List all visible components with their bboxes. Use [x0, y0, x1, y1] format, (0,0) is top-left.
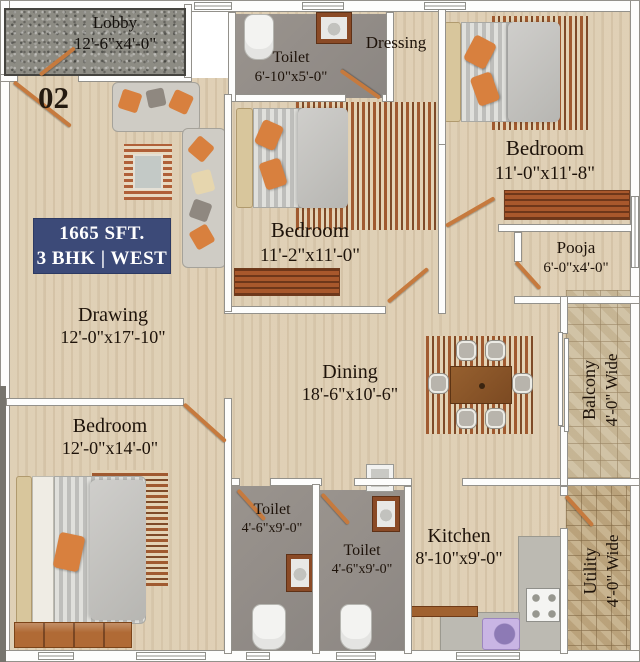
kitchen-shelf — [410, 606, 478, 617]
wardrobe-icon — [504, 190, 630, 220]
room-dims: 4'-0" Wide — [601, 354, 622, 427]
room-name: Toilet — [232, 500, 312, 520]
basin-bowl — [321, 17, 347, 39]
pooja-label: Pooja 6'-0"x4'-0" — [530, 238, 622, 277]
washbasin-icon — [372, 496, 400, 532]
room-name: Dining — [290, 360, 410, 384]
wall — [462, 478, 564, 486]
wall — [234, 94, 346, 102]
wall — [560, 478, 640, 486]
wall — [560, 296, 568, 334]
kitchen-label: Kitchen 8'-10"x9'-0" — [405, 524, 513, 570]
table-knob — [479, 383, 485, 389]
bed-headboard — [236, 108, 253, 208]
room-dims: 8'-10"x9'-0" — [405, 548, 513, 570]
wall — [514, 296, 640, 304]
sofa-icon — [182, 128, 226, 268]
window-icon — [38, 652, 74, 660]
wall — [498, 224, 638, 232]
chair-icon — [486, 409, 505, 428]
room-dims: 6'-0"x4'-0" — [530, 259, 622, 277]
dressing-label: Dressing — [356, 33, 436, 54]
wall — [438, 144, 446, 314]
toilet-left-label: Toilet 4'-6"x9'-0" — [232, 500, 312, 537]
wall — [0, 650, 640, 662]
washbasin-icon — [286, 554, 314, 592]
room-name: Pooja — [530, 238, 622, 259]
room-name: Dressing — [356, 33, 436, 54]
wall — [312, 484, 320, 654]
toilet-fixture-icon — [252, 604, 286, 650]
room-dims: 4'-0" Wide — [602, 535, 623, 608]
wall — [560, 528, 568, 654]
washbasin-icon — [316, 12, 352, 44]
bed-icon — [236, 108, 348, 208]
cushion-icon — [188, 223, 215, 250]
lobby-label: Lobby 12'-6"x4'-0" — [55, 13, 175, 54]
room-dims: 4'-6"x9'-0" — [322, 561, 402, 578]
wall — [228, 12, 236, 102]
basin-bowl — [377, 501, 395, 527]
room-dims: 12'-0"x17'-10" — [53, 327, 173, 349]
room-name: Drawing — [53, 303, 173, 327]
room-dims: 12'-6"x4'-0" — [55, 34, 175, 55]
bed-icon — [16, 476, 146, 624]
wall — [224, 306, 386, 314]
room-dims: 11'-2"x11'-0" — [240, 244, 380, 267]
chair-icon — [486, 341, 505, 360]
bedroom-left-label: Bedroom 12'-0"x14'-0" — [40, 414, 180, 460]
wall — [438, 6, 446, 146]
window-icon — [246, 652, 270, 660]
dining-table-icon — [450, 366, 512, 404]
bed-blanket — [508, 22, 560, 122]
unit-number: 02 — [38, 80, 69, 116]
wall — [224, 398, 232, 654]
bed-headboard — [16, 476, 32, 624]
wall — [224, 94, 232, 312]
room-name: Lobby — [55, 13, 175, 34]
utility-label: Utility 4'-0" Wide — [568, 508, 634, 634]
wall — [386, 12, 394, 102]
cushion-icon — [188, 198, 212, 222]
rug-center — [133, 154, 163, 190]
sink-icon — [482, 618, 520, 650]
sliding-door-icon — [558, 332, 563, 426]
cushion-icon — [187, 135, 215, 163]
bedroom-right-label: Bedroom 11'-0"x11'-8" — [475, 136, 615, 185]
room-name: Bedroom — [475, 136, 615, 162]
window-icon — [424, 2, 466, 10]
wall — [6, 398, 184, 406]
balcony-label: Balcony 4'-0" Wide — [566, 330, 634, 450]
chair-icon — [513, 374, 532, 393]
room-name: Toilet — [245, 48, 337, 68]
window-icon — [456, 652, 520, 660]
bed-icon — [444, 22, 560, 122]
rug-icon — [124, 144, 172, 200]
drawing-label: Drawing 12'-0"x17'-10" — [53, 303, 173, 349]
cushion-icon — [190, 169, 215, 195]
floor-plan: Lobby 12'-6"x4'-0" 02 Toilet 6'-10"x5'-0… — [0, 0, 640, 662]
toilet-middle-label: Toilet 4'-6"x9'-0" — [322, 541, 402, 578]
bed-pillow-strip — [32, 476, 54, 624]
room-name: Balcony — [578, 360, 601, 420]
room-name: Bedroom — [40, 414, 180, 438]
wardrobe-icon — [234, 268, 340, 296]
cushion-icon — [117, 88, 142, 113]
basin-bowl — [291, 559, 309, 587]
window-icon — [194, 2, 232, 10]
room-dims: 4'-6"x9'-0" — [232, 520, 312, 537]
room-name: Bedroom — [240, 218, 380, 244]
room-dims: 18'-6"x10'-6" — [290, 384, 410, 406]
chair-icon — [457, 409, 476, 428]
room-name: Kitchen — [405, 524, 513, 548]
chair-icon — [457, 341, 476, 360]
room-dims: 11'-0"x11'-8" — [475, 162, 615, 185]
exterior-wall-shade — [0, 386, 6, 662]
bed-blanket — [90, 480, 146, 620]
dresser-icon — [14, 622, 132, 648]
room-dims: 12'-0"x14'-0" — [40, 438, 180, 460]
badge-area: 1665 SFT. — [59, 221, 144, 246]
window-icon — [631, 196, 639, 268]
stove-icon — [526, 588, 560, 622]
cushion-icon — [145, 87, 166, 108]
cushion-icon — [168, 89, 195, 116]
room-name: Utility — [579, 548, 602, 595]
sofa-icon — [112, 82, 200, 132]
toilet-top-label: Toilet 6'-10"x5'-0" — [245, 48, 337, 86]
chair-icon — [429, 374, 448, 393]
bed-headboard — [444, 22, 461, 122]
bedroom-middle-label: Bedroom 11'-2"x11'-0" — [240, 218, 380, 267]
room-dims: 6'-10"x5'-0" — [245, 68, 337, 86]
toilet-fixture-icon — [340, 604, 372, 650]
window-icon — [336, 652, 376, 660]
dining-label: Dining 18'-6"x10'-6" — [290, 360, 410, 406]
room-name: Toilet — [322, 541, 402, 561]
window-icon — [136, 652, 206, 660]
bed-blanket — [298, 108, 348, 208]
wall — [354, 478, 412, 486]
wall — [514, 232, 522, 262]
badge-config: 3 BHK | WEST — [37, 246, 168, 271]
window-icon — [302, 2, 344, 10]
area-badge: 1665 SFT. 3 BHK | WEST — [34, 219, 170, 273]
